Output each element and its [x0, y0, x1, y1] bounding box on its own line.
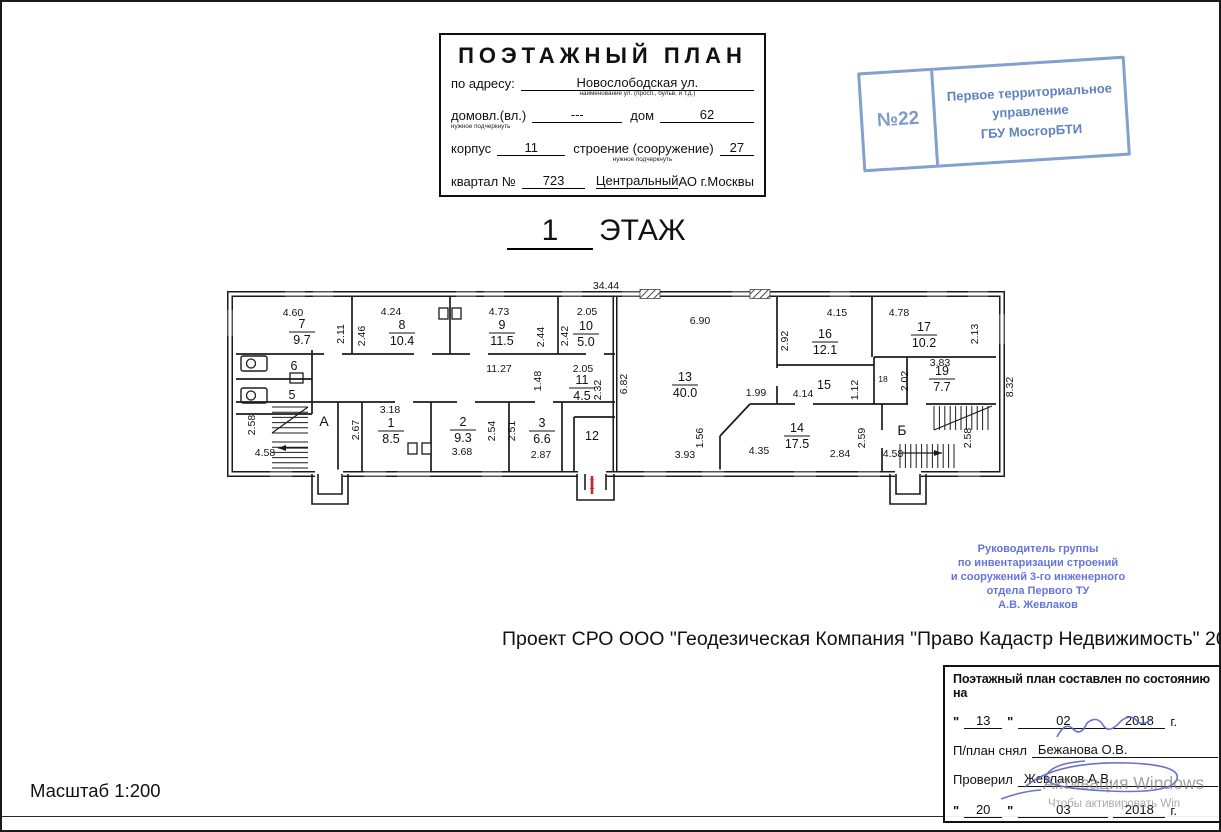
- door-opening: [535, 398, 553, 406]
- window: [456, 290, 476, 299]
- dimension-label: 3.18: [380, 404, 401, 416]
- dimension-label: 2.58: [246, 415, 258, 436]
- dimension-label: 2.58: [962, 428, 974, 449]
- room-number: 17: [917, 320, 931, 334]
- window: [998, 314, 1007, 344]
- room-mark: 5: [289, 388, 296, 402]
- room-area: 7.7: [933, 380, 950, 394]
- dimension-label: 2.67: [350, 420, 362, 441]
- hatched-wall-section: [640, 290, 660, 299]
- room-number: 1: [388, 416, 395, 430]
- date1-day: 13: [964, 713, 1002, 729]
- ownership-label: домовл.(вл.) нужное подчеркнуть: [451, 108, 532, 123]
- window: [968, 290, 988, 299]
- window: [397, 470, 430, 479]
- sink-icon: [290, 373, 303, 383]
- dimension-label: 6.90: [690, 315, 711, 327]
- scanned-floor-plan-page: ПОЭТАЖНЫЙ ПЛАН по адресу: Новослободская…: [0, 0, 1221, 832]
- dimension-label: 6.82: [618, 374, 630, 395]
- room-area: 6.6: [533, 432, 550, 446]
- dimension-label: 2.92: [779, 331, 791, 352]
- quote-mark: ": [953, 803, 959, 818]
- dimension-label: 4.15: [827, 307, 848, 319]
- room-area: 10.2: [912, 336, 936, 350]
- dimension-label: 4.73: [489, 306, 510, 318]
- window: [364, 470, 386, 479]
- approval-line: Руководитель группы: [978, 543, 1099, 555]
- stamp-number: №22: [860, 71, 939, 169]
- toilet-icon: [247, 359, 256, 368]
- dimension-label: 2.84: [830, 448, 851, 460]
- window: [858, 470, 880, 479]
- door-opening: [457, 398, 475, 406]
- district-value: Центральный: [596, 173, 679, 189]
- window: [702, 470, 724, 479]
- structure-field: 27: [720, 140, 754, 156]
- ownership-field: ---: [532, 107, 622, 123]
- door-leaf-symbol: [452, 308, 461, 319]
- dimension-label: 1.48: [532, 371, 544, 392]
- dimension-label: 1.12: [849, 380, 861, 401]
- dimension-label: 2.51: [506, 421, 518, 442]
- room-area: 17.5: [785, 437, 809, 451]
- date1-year: 2018: [1113, 713, 1165, 729]
- toilet-icon: [247, 391, 256, 400]
- dimension-label: 2.42: [559, 326, 571, 347]
- hatched-wall-section: [750, 290, 770, 299]
- window: [226, 310, 235, 336]
- room-number: 14: [790, 421, 804, 435]
- window: [958, 470, 980, 479]
- room-number: 11: [576, 373, 589, 387]
- door-opening: [324, 350, 342, 358]
- stair-diagonal: [272, 407, 308, 433]
- window: [644, 470, 666, 479]
- dimension-label: 2.05: [577, 306, 598, 318]
- dimension-label: 3.68: [452, 446, 473, 458]
- dimension-label: 2.32: [592, 380, 604, 401]
- room-mark: 15: [817, 378, 831, 392]
- dimension-label: 2.87: [531, 449, 552, 461]
- floor-number: 1: [507, 214, 593, 250]
- door-leaf-symbol: [408, 443, 417, 454]
- quote-mark: ": [953, 714, 959, 729]
- window: [562, 290, 582, 299]
- stamp-org-line3: ГБУ МосгорБТИ: [980, 119, 1082, 144]
- approval-stamp: Руководитель группы по инвентаризации ст…: [938, 542, 1138, 612]
- dimension-label: 4.58: [255, 447, 276, 459]
- room-area: 9.3: [454, 431, 471, 445]
- stair-diagonal: [934, 406, 992, 430]
- stair-arrow-head: [278, 445, 286, 451]
- dimension-label: 2.46: [356, 326, 368, 347]
- door-opening: [795, 400, 813, 408]
- room-mark: 12: [585, 429, 599, 443]
- windows-activation-watermark: Активация Windows: [1043, 773, 1204, 794]
- interior-wall: [720, 404, 750, 436]
- room-number: 3: [539, 416, 546, 430]
- toilet-icon: [241, 356, 267, 371]
- building-field: 11: [497, 140, 565, 156]
- block-field: 723: [522, 173, 585, 189]
- address-field: Новослободская ул. наименование ул. (про…: [521, 75, 754, 91]
- approval-line: отдела Первого ТУ: [987, 585, 1090, 597]
- dimension-label: 2.44: [535, 327, 547, 348]
- dimension-label: 8.32: [1004, 377, 1016, 398]
- window: [622, 290, 640, 299]
- toilet-icon: [241, 388, 267, 403]
- quote-mark: ": [1007, 803, 1013, 818]
- scale-label: Масштаб 1:200: [30, 780, 161, 802]
- dimension-label: 2.02: [899, 371, 911, 392]
- stamp-org: Первое территориальное управление ГБУ Мо…: [934, 60, 1128, 164]
- room-area: 4.5: [573, 389, 590, 403]
- block-label: квартал №: [451, 174, 522, 189]
- room-number: 16: [818, 327, 832, 341]
- window: [794, 470, 816, 479]
- window: [270, 470, 292, 479]
- registration-stamp: №22 Первое территориальное управление ГБ…: [857, 56, 1131, 173]
- entrance-opening: [895, 470, 921, 479]
- district-suffix: АО г.Москвы: [678, 174, 754, 189]
- room-area: 8.5: [382, 432, 399, 446]
- approval-line: по инвентаризации строений: [958, 557, 1118, 569]
- dimension-label: 4.58: [883, 448, 904, 460]
- door-opening: [414, 350, 432, 358]
- room-number: 10: [579, 319, 593, 333]
- room-area: 12.1: [813, 343, 837, 357]
- dimension-label: 1.99: [746, 387, 767, 399]
- dimension-label: 2.11: [335, 324, 347, 344]
- room-number: 8: [399, 318, 406, 332]
- door-opening: [586, 350, 604, 358]
- dimension-label: 4.35: [749, 445, 770, 457]
- room-mark: Б: [897, 422, 906, 438]
- room-mark: 6: [291, 359, 298, 373]
- door-leaf-symbol: [422, 443, 431, 454]
- building-label: корпус: [451, 141, 497, 156]
- structure-caption: нужное подчеркнуть: [565, 156, 720, 163]
- made-name: Бежанова О.В.: [1032, 742, 1218, 758]
- room-number: 19: [935, 364, 949, 378]
- floor-word: ЭТАЖ: [599, 214, 686, 247]
- door-opening: [773, 368, 781, 386]
- room-area: 9.7: [293, 333, 310, 347]
- structure-label: строение (сооружение) нужное подчеркнуть: [565, 141, 720, 156]
- address-caption: наименование ул. (просп., бульв. и т.д.): [521, 90, 754, 97]
- window: [927, 290, 947, 299]
- door-leaf-symbol: [439, 308, 448, 319]
- dimension-label: 11.27: [486, 363, 512, 375]
- date1-suffix: г.: [1170, 714, 1177, 729]
- title-block: ПОЭТАЖНЫЙ ПЛАН по адресу: Новослободская…: [439, 33, 766, 197]
- project-line: Проект СРО ООО "Геодезическая Компания "…: [502, 628, 1221, 651]
- date1-month: 02: [1018, 713, 1108, 729]
- dimension-label: 1.56: [694, 428, 706, 449]
- dimension-label: 2.54: [486, 421, 498, 442]
- door-opening: [470, 350, 488, 358]
- entrance-mark: I: [589, 477, 595, 493]
- room-mark: А: [319, 413, 329, 429]
- ownership-caption: нужное подчеркнуть: [451, 123, 510, 130]
- dimension-label: 3.93: [675, 449, 696, 461]
- window: [830, 290, 850, 299]
- approval-line: А.В. Жевлаков: [998, 599, 1078, 611]
- room-number: 2: [460, 415, 467, 429]
- room-area: 11.5: [490, 334, 513, 348]
- dimension-label: 4.14: [793, 388, 814, 400]
- door-opening: [908, 400, 926, 408]
- window: [285, 290, 305, 299]
- dimension-label: 2.59: [856, 428, 868, 449]
- room-number: 9: [499, 318, 506, 332]
- house-field: 62: [660, 107, 754, 123]
- window: [313, 290, 333, 299]
- room-mark: 18: [878, 374, 888, 384]
- date2-day: 20: [964, 802, 1002, 818]
- room-area: 10.4: [390, 334, 414, 348]
- room-area: 5.0: [577, 335, 594, 349]
- room-number: 13: [678, 370, 692, 384]
- room-number: 7: [299, 317, 306, 331]
- dimension-label: 4.24: [381, 306, 402, 318]
- approval-line: и сооружений 3-го инженерного: [951, 571, 1125, 583]
- entrance-opening: [315, 470, 343, 479]
- window: [732, 290, 750, 299]
- dimension-label: 4.78: [889, 307, 910, 319]
- dimension-label: 34.44: [593, 280, 619, 292]
- door-opening: [878, 430, 886, 448]
- quote-mark: ": [1007, 714, 1013, 729]
- signature-header: Поэтажный план составлен по состоянию на: [953, 672, 1218, 700]
- address-value: Новослободская ул.: [576, 75, 698, 90]
- address-label: по адресу:: [451, 76, 521, 91]
- window: [482, 470, 502, 479]
- room-area: 40.0: [673, 386, 697, 400]
- floor-title: 1ЭТАЖ: [507, 214, 686, 250]
- house-label: дом: [622, 108, 660, 123]
- window: [484, 290, 504, 299]
- windows-activation-watermark-sub: Чтобы активировать Win: [1048, 798, 1180, 810]
- dimension-label: 2.13: [969, 324, 981, 345]
- document-title: ПОЭТАЖНЫЙ ПЛАН: [451, 43, 754, 69]
- checked-label: Проверил: [953, 772, 1013, 787]
- made-label: П/план снял: [953, 743, 1027, 758]
